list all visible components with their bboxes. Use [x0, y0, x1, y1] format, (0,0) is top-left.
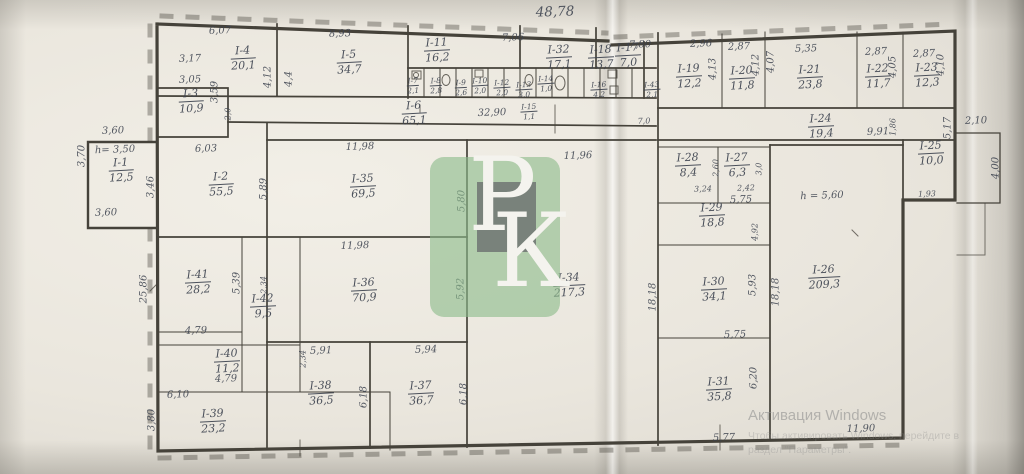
scanned-floor-plan: I-112,5I-255,5I-310,9I-420,1I-534,7I-665…	[0, 0, 1024, 474]
dimension-label: 4,13	[708, 58, 719, 80]
room-number: I-35	[349, 172, 376, 187]
dimension-label: 3,0	[755, 163, 764, 176]
room-label-I-21: I-2123,8	[796, 63, 823, 90]
room-label-I-6: I-665,1	[401, 99, 427, 126]
dimension-label: 5,94	[415, 344, 438, 356]
room-area: 34,1	[701, 289, 728, 303]
room-number: I-21	[796, 63, 823, 78]
dimension-label: 3,24	[694, 184, 712, 194]
room-label-I-5: I-534,7	[336, 48, 362, 75]
room-area: 18,8	[699, 215, 726, 229]
room-label-I-9: I-92,6	[454, 79, 467, 97]
room-number: I-18	[587, 43, 614, 58]
dimension-label: 5,77	[713, 432, 736, 444]
room-area: 19,4	[808, 126, 835, 140]
room-label-I-12: I-122,0	[493, 79, 511, 98]
room-area: 2,1	[643, 90, 660, 100]
room-area: 7,0	[615, 55, 642, 69]
room-area: 69,5	[350, 186, 377, 200]
room-number: I-2	[208, 170, 233, 185]
dimension-label: 11,96	[563, 150, 592, 162]
room-area: 8,4	[675, 165, 702, 179]
room-label-I-31: I-3135,8	[705, 375, 732, 402]
room-number: I-30	[700, 275, 727, 290]
room-number: I-32	[545, 43, 572, 58]
room-number: I-37	[407, 379, 434, 394]
room-label-I-18: I-1813,7	[587, 43, 614, 70]
dimension-label: 1,86	[889, 118, 898, 136]
dimension-label: 4,12	[263, 66, 274, 88]
dimension-label: 5,75	[724, 329, 747, 341]
rk-watermark-logo: Р К	[430, 157, 560, 317]
room-label-I-4: I-420,1	[230, 44, 256, 71]
dimension-label: 3,80	[147, 409, 158, 431]
room-number: I-36	[350, 276, 377, 291]
room-area: 10,0	[918, 153, 945, 167]
dimension-label: 3,60	[102, 125, 125, 137]
dimension-label: 11,98	[340, 240, 369, 252]
room-area: 16,2	[424, 50, 451, 64]
dimension-label: 4,79	[185, 325, 208, 337]
room-area: 11,8	[729, 78, 756, 92]
dimension-label: 2,0	[224, 108, 233, 121]
room-label-I-2: I-255,5	[208, 170, 234, 197]
dimension-label: 2,42	[737, 183, 755, 193]
dimension-label: 7,80	[629, 39, 652, 51]
room-area: 55,5	[209, 184, 234, 198]
dimension-label: 18,18	[771, 278, 782, 307]
room-number: I-38	[307, 379, 334, 394]
room-label-I-29: I-2918,8	[698, 201, 725, 228]
room-label-I-13: I-133,0	[515, 81, 533, 100]
room-label-I-30: I-3034,1	[700, 275, 727, 302]
dimension-label: 9,91	[867, 126, 890, 138]
room-number: I-28	[674, 151, 701, 166]
room-area: 34,7	[337, 62, 362, 76]
room-label-I-27: I-276,3	[723, 151, 750, 178]
room-number: I-40	[213, 347, 240, 362]
room-number: I-4	[230, 44, 255, 59]
room-label-I-14: I-141,0	[537, 75, 555, 94]
dimension-label: 3,05	[179, 74, 202, 86]
dimension-label: 4,10	[936, 54, 947, 76]
room-area: 1,1	[520, 112, 537, 122]
room-area: 36,7	[408, 393, 435, 407]
room-number: I-5	[336, 48, 361, 63]
room-label-I-26: I-26209,3	[808, 263, 841, 291]
room-area: 2,8	[430, 86, 443, 96]
room-area: 23,8	[797, 77, 824, 91]
room-number: I-6	[401, 99, 426, 114]
dimension-label: 7,06	[502, 32, 525, 44]
room-area: 1,0	[537, 84, 554, 94]
dimension-label: 8,93	[329, 28, 352, 40]
room-label-I-7: I-72,1	[406, 77, 419, 95]
room-label-I-16: I-164,2	[590, 81, 608, 100]
dimension-label: 5,35	[795, 43, 818, 55]
room-label-I-11: I-1116,2	[423, 36, 450, 63]
rk-logo-letter-k: К	[492, 201, 571, 303]
room-number: I-39	[199, 407, 226, 422]
room-area: 2,6	[455, 88, 468, 98]
dimension-label: 3,60	[95, 207, 118, 219]
dimension-label: 6,18	[459, 383, 470, 405]
room-label-I-32: I-3217,1	[545, 43, 572, 70]
dimension-label: 4,05	[888, 56, 899, 78]
windows-activation-watermark: Активация Windows Чтобы активировать Win…	[748, 407, 959, 456]
room-area: 209,3	[808, 277, 840, 291]
room-area: 10,9	[179, 101, 204, 115]
room-area: 65,1	[402, 113, 427, 127]
dimension-label: 4,07	[766, 51, 777, 73]
dimension-label: 18,18	[648, 283, 659, 312]
windows-activation-title: Активация Windows	[748, 407, 959, 424]
dimension-label: 6,03	[195, 143, 218, 155]
dimension-label: 5,75	[730, 194, 753, 206]
room-number: I-1	[108, 156, 133, 171]
room-label-I-40: I-4011,2	[213, 347, 240, 374]
room-area: 2,1	[407, 86, 420, 96]
dimension-label: 4,12	[751, 54, 762, 76]
dimension-label: h= 3,50	[95, 144, 136, 156]
room-area: 2,0	[493, 88, 510, 98]
room-label-I-3: I-310,9	[178, 87, 204, 114]
dimension-label: 4,00	[991, 157, 1002, 179]
room-label-I-38: I-3836,5	[307, 379, 334, 406]
dimension-label: 4,79	[215, 373, 238, 385]
room-label-I-15: I-151,1	[520, 103, 538, 122]
room-area: 35,8	[706, 389, 733, 403]
room-area: 3,0	[515, 90, 532, 100]
room-label-I-10: I-102,0	[471, 77, 489, 96]
room-area: 12,2	[676, 76, 703, 90]
dimension-label: 6,18	[359, 386, 370, 408]
room-label-I-19: I-1912,2	[675, 62, 702, 89]
room-number: I-11	[423, 36, 450, 51]
room-area: 9,5	[250, 306, 277, 320]
room-label-I-25: I-2510,0	[917, 139, 944, 166]
room-number: I-25	[917, 139, 944, 154]
room-label-I-36: I-3670,9	[350, 276, 377, 303]
room-number: I-41	[184, 268, 211, 283]
dimension-label: h = 5,60	[800, 190, 844, 203]
dimension-label: 2,87	[728, 41, 751, 53]
dimension-label: 32,90	[477, 107, 506, 119]
dimension-label: 2,87	[913, 48, 936, 60]
dimension-label: 5,93	[748, 274, 759, 296]
room-area: 12,3	[914, 75, 941, 89]
room-area: 23,2	[200, 421, 227, 435]
room-label-I-43: I-432,1	[643, 81, 661, 100]
room-area: 36,5	[308, 393, 335, 407]
dimension-label: 2,96	[690, 38, 713, 50]
dimension-label: 2,34	[299, 350, 308, 368]
dimension-label: 6,20	[749, 367, 760, 389]
room-area: 12,5	[109, 170, 134, 184]
room-number: I-42	[249, 292, 276, 307]
room-label-I-42: I-429,5	[249, 292, 276, 319]
dimension-label: 48,78	[535, 3, 574, 20]
dimension-label: 3,46	[146, 176, 157, 198]
room-label-I-24: I-2419,4	[807, 112, 834, 139]
dimension-label: 25,86	[139, 275, 150, 304]
room-label-I-37: I-3736,7	[407, 379, 434, 406]
room-area: 13,7	[588, 57, 615, 71]
room-label-I-35: I-3569,5	[349, 172, 376, 199]
room-area: 2,0	[471, 86, 488, 96]
dimension-label: 5,91	[310, 345, 333, 357]
dimension-label: 2,10	[965, 115, 988, 127]
room-number: I-3	[178, 87, 203, 102]
room-area: 4,2	[590, 90, 607, 100]
room-label-I-1: I-112,5	[108, 156, 134, 183]
room-area: 20,1	[231, 58, 256, 72]
windows-activation-subtitle-2: раздел "Параметры".	[748, 444, 959, 456]
dimension-label: 3,17	[179, 53, 202, 65]
room-label-I-8: I-82,8	[429, 77, 442, 95]
dimension-label: 2,34	[260, 276, 269, 294]
dimension-label: 4,4	[284, 71, 295, 87]
dimension-label: 5,39	[232, 272, 243, 294]
room-area: 70,9	[351, 290, 378, 304]
windows-activation-subtitle: Чтобы активировать Windows, перейдите в	[748, 430, 959, 442]
room-number: I-19	[675, 62, 702, 77]
room-number: I-31	[705, 375, 732, 390]
room-number: I-29	[698, 201, 725, 216]
dimension-label: 3,59	[210, 81, 221, 103]
dimension-label: 3,70	[77, 145, 88, 167]
dimension-label: 5,17	[943, 117, 954, 139]
room-number: I-27	[723, 151, 750, 166]
room-label-I-39: I-3923,2	[199, 407, 226, 434]
dimension-label: 1,93	[918, 189, 936, 199]
dimension-label: 5,89	[259, 178, 270, 200]
dimension-label: 4,92	[751, 223, 760, 241]
room-label-I-41: I-4128,2	[184, 268, 211, 295]
dimension-label: 11,98	[345, 141, 374, 153]
dimension-label: 6,07	[209, 25, 232, 37]
dimension-label: 2,60	[712, 159, 721, 177]
room-number: I-24	[807, 112, 834, 127]
room-area: 28,2	[185, 282, 212, 296]
dimension-label: 2,87	[865, 46, 888, 58]
room-area: 17,1	[546, 57, 573, 71]
room-area: 6,3	[724, 165, 751, 179]
dimension-label: 7,0	[637, 116, 650, 125]
dimension-label: 6,10	[167, 389, 190, 401]
room-label-I-28: I-288,4	[674, 151, 701, 178]
